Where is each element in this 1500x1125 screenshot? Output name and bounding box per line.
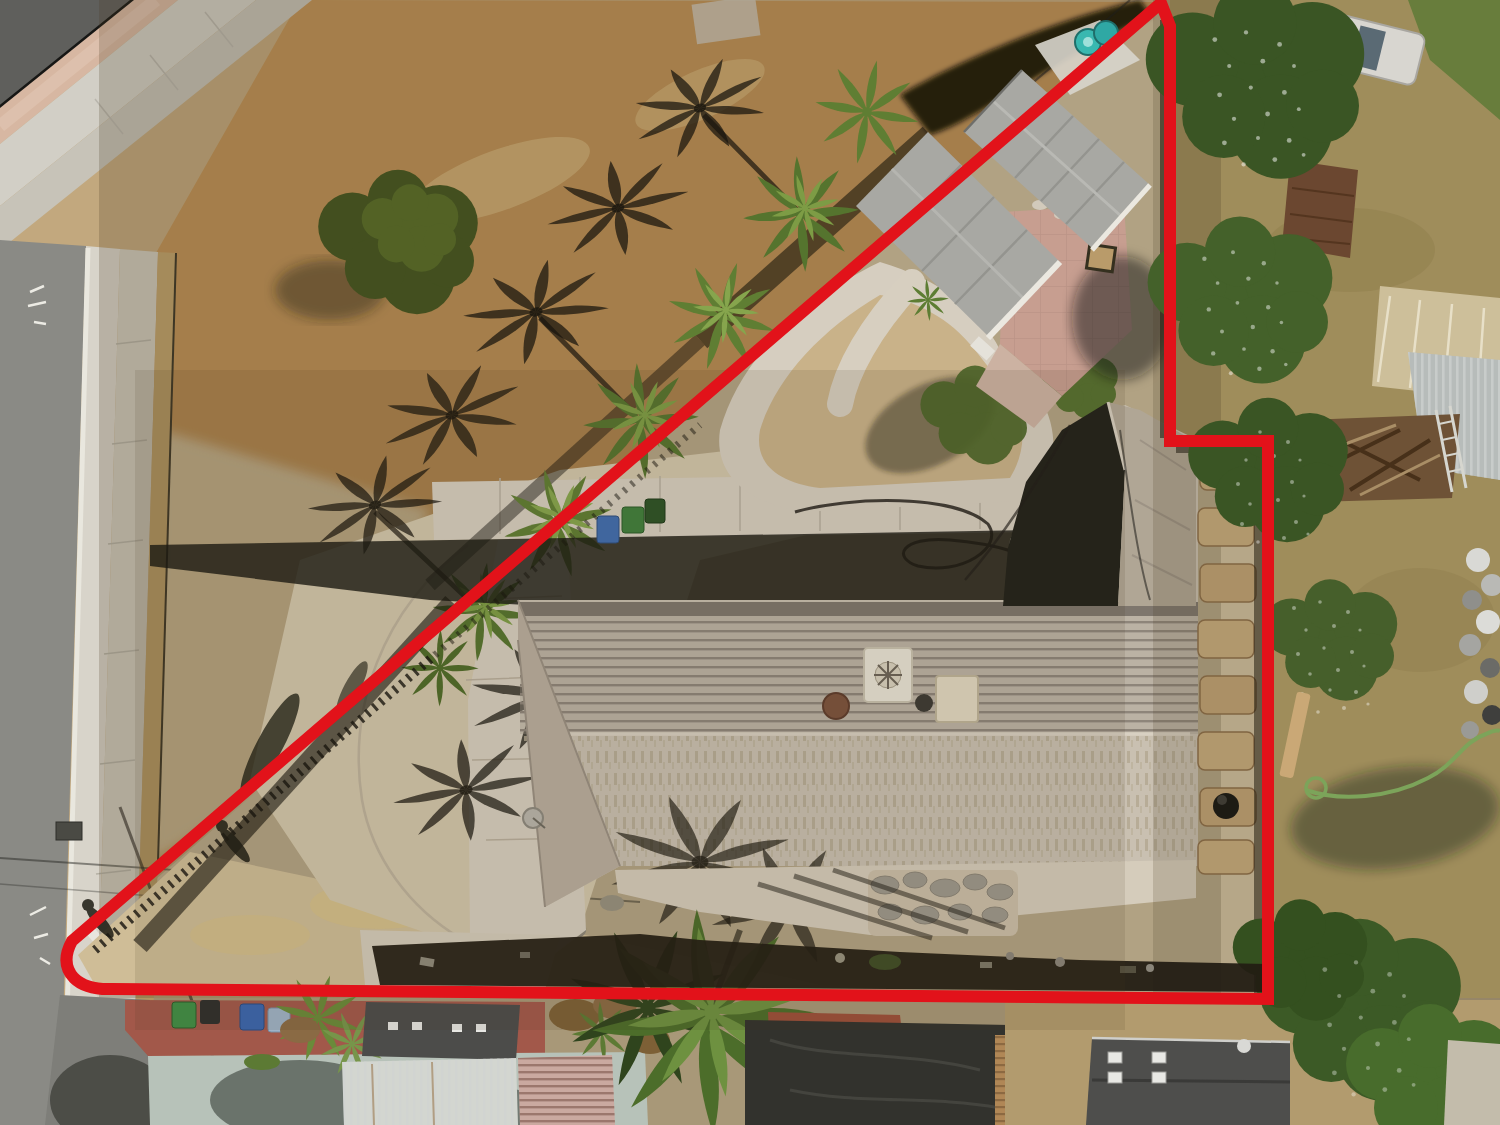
small-shed-roof (1444, 1040, 1500, 1125)
grass-tuft (244, 1054, 280, 1070)
neighbor-bin-green (172, 1002, 196, 1028)
black-tarp-canopy (745, 1020, 1015, 1125)
aerial-photo-stage (0, 0, 1500, 1125)
bottom-garage-roof (362, 1002, 520, 1060)
shrub-brown (280, 1017, 320, 1043)
pergola-slat-lines (518, 1055, 615, 1125)
neighbor-right (1146, 0, 1500, 1000)
corrugated-ribs (342, 1058, 518, 1125)
neighbor-bin-blue (240, 1004, 264, 1030)
roof-vent-round (1237, 1039, 1251, 1053)
storm-drain (56, 822, 82, 840)
center-texture (180, 400, 1080, 1000)
barrel-rim (1083, 37, 1093, 47)
neighbor-bin-black (200, 1000, 220, 1024)
aerial-photo (0, 0, 1500, 1125)
